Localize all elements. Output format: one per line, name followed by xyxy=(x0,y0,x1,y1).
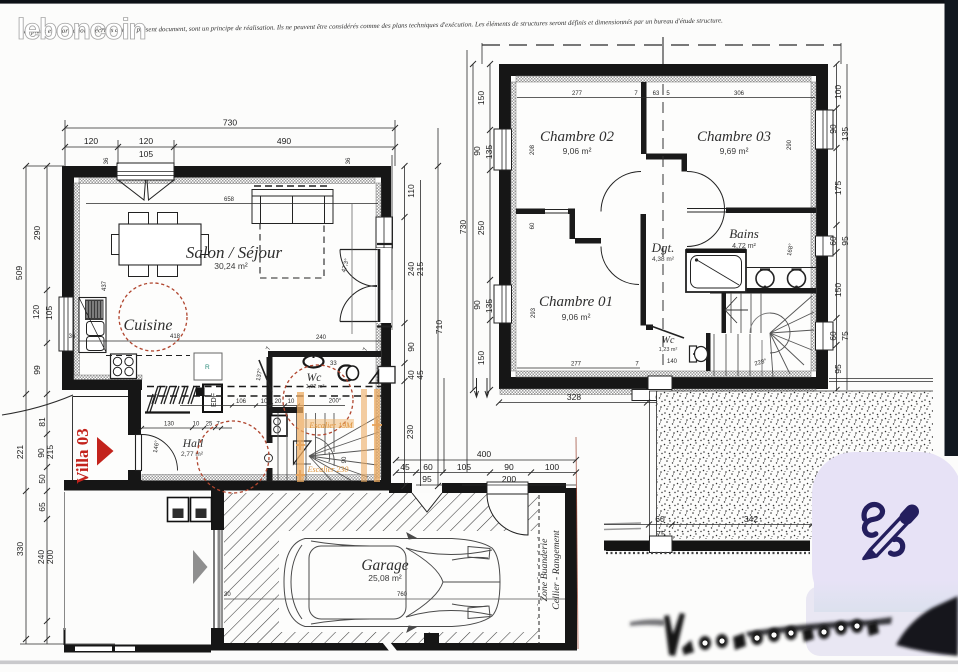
svg-text:1,92 m²: 1,92 m² xyxy=(306,384,325,390)
svg-text:105: 105 xyxy=(457,462,471,472)
svg-text:60: 60 xyxy=(828,236,838,246)
svg-text:2,77 m²: 2,77 m² xyxy=(181,451,204,458)
svg-text:75: 75 xyxy=(840,331,850,341)
svg-text:60: 60 xyxy=(655,514,665,524)
svg-text:99: 99 xyxy=(32,365,42,375)
svg-text:33: 33 xyxy=(330,361,337,367)
svg-text:135: 135 xyxy=(484,145,494,159)
svg-text:277: 277 xyxy=(572,91,583,97)
svg-text:4,38 m²: 4,38 m² xyxy=(652,256,675,263)
svg-text:105: 105 xyxy=(139,149,153,159)
svg-text:Chambre 02: Chambre 02 xyxy=(540,129,615,145)
svg-text:306: 306 xyxy=(734,91,745,97)
svg-text:100: 100 xyxy=(833,85,843,99)
svg-text:120: 120 xyxy=(31,305,41,319)
svg-text:509: 509 xyxy=(14,266,24,280)
svg-text:200: 200 xyxy=(502,474,516,484)
svg-text:10: 10 xyxy=(193,422,200,428)
svg-text:1,23 m²: 1,23 m² xyxy=(659,347,678,353)
svg-text:110: 110 xyxy=(406,184,416,198)
svg-text:150: 150 xyxy=(476,351,486,365)
svg-text:Escalier 19M: Escalier 19M xyxy=(308,421,354,430)
svg-text:25,08 m²: 25,08 m² xyxy=(368,573,402,583)
svg-text:290: 290 xyxy=(32,226,42,240)
svg-text:120: 120 xyxy=(84,136,98,146)
svg-text:90: 90 xyxy=(406,342,416,352)
svg-text:45: 45 xyxy=(400,462,410,472)
svg-text:63: 63 xyxy=(653,91,660,97)
svg-text:90: 90 xyxy=(472,146,482,156)
svg-text:100: 100 xyxy=(545,462,559,472)
svg-text:330: 330 xyxy=(15,542,25,556)
svg-text:36: 36 xyxy=(346,157,352,164)
svg-text:Chambre 01: Chambre 01 xyxy=(539,294,613,310)
svg-text:240: 240 xyxy=(316,335,327,341)
svg-text:277: 277 xyxy=(571,362,582,368)
svg-text:45: 45 xyxy=(415,370,425,380)
svg-text:Villa 03: Villa 03 xyxy=(73,428,92,484)
svg-text:Escalier 230: Escalier 230 xyxy=(307,465,349,474)
svg-text:9,06 m²: 9,06 m² xyxy=(562,312,591,322)
svg-text:EDF: EDF xyxy=(211,393,218,407)
svg-text:Dgt.: Dgt. xyxy=(651,240,675,255)
svg-text:30: 30 xyxy=(224,592,231,598)
svg-text:36: 36 xyxy=(69,334,76,340)
svg-text:730: 730 xyxy=(223,118,237,128)
svg-text:25: 25 xyxy=(206,422,213,428)
svg-text:342: 342 xyxy=(744,514,758,524)
svg-text:208: 208 xyxy=(530,144,536,155)
svg-text:250: 250 xyxy=(476,221,486,235)
svg-text:105: 105 xyxy=(44,306,54,320)
svg-text:328: 328 xyxy=(567,392,581,402)
svg-text:90: 90 xyxy=(504,462,514,472)
svg-text:230: 230 xyxy=(405,425,415,439)
svg-text:730: 730 xyxy=(458,220,468,234)
svg-text:36: 36 xyxy=(104,157,110,164)
svg-text:215: 215 xyxy=(45,445,55,459)
svg-text:710: 710 xyxy=(434,320,444,334)
svg-text:135: 135 xyxy=(840,127,850,141)
svg-text:Hall: Hall xyxy=(182,438,203,450)
svg-text:400: 400 xyxy=(477,449,491,459)
svg-text:60: 60 xyxy=(423,462,433,472)
svg-text:30,24 m²: 30,24 m² xyxy=(214,261,248,271)
svg-text:437: 437 xyxy=(102,280,108,291)
svg-text:290: 290 xyxy=(787,139,793,150)
svg-text:130: 130 xyxy=(164,422,175,428)
svg-text:9,69 m²: 9,69 m² xyxy=(720,146,749,156)
svg-text:90: 90 xyxy=(342,456,348,463)
svg-text:60: 60 xyxy=(828,331,838,341)
svg-text:200°: 200° xyxy=(329,399,342,405)
svg-text:490: 490 xyxy=(277,136,291,146)
svg-text:Cellier - Rangement: Cellier - Rangement xyxy=(551,530,562,610)
svg-text:Wc: Wc xyxy=(662,335,675,346)
svg-text:4,72 m²: 4,72 m² xyxy=(732,243,756,250)
svg-text:Chambre 03: Chambre 03 xyxy=(697,129,771,145)
svg-text:150: 150 xyxy=(833,283,843,297)
svg-text:10: 10 xyxy=(288,399,295,405)
svg-text:140: 140 xyxy=(667,359,678,365)
svg-text:Wc: Wc xyxy=(307,372,322,384)
svg-text:Salon / Séjour: Salon / Séjour xyxy=(186,243,283,262)
svg-text:106: 106 xyxy=(236,399,247,405)
svg-text:215: 215 xyxy=(415,262,425,276)
svg-text:200: 200 xyxy=(45,550,55,564)
svg-text:leboncoin: leboncoin xyxy=(17,13,145,46)
svg-text:Cuisine: Cuisine xyxy=(124,317,173,334)
svg-text:60: 60 xyxy=(530,222,536,229)
svg-text:10: 10 xyxy=(261,399,268,405)
svg-text:R: R xyxy=(205,364,210,371)
svg-text:Garage: Garage xyxy=(361,557,408,574)
svg-text:293: 293 xyxy=(531,307,537,318)
svg-text:95: 95 xyxy=(833,364,843,374)
svg-text:135: 135 xyxy=(484,299,494,313)
svg-text:221: 221 xyxy=(15,445,25,459)
svg-text:81: 81 xyxy=(37,417,47,427)
svg-text:9,06 m²: 9,06 m² xyxy=(563,146,592,156)
svg-text:20: 20 xyxy=(275,399,282,405)
svg-text:90: 90 xyxy=(828,124,838,134)
svg-text:Bains: Bains xyxy=(729,226,759,241)
svg-text:Zone Buanderie: Zone Buanderie xyxy=(539,538,550,602)
svg-text:65: 65 xyxy=(37,502,47,512)
svg-text:95: 95 xyxy=(840,236,850,246)
svg-text:50: 50 xyxy=(37,474,47,484)
svg-text:150: 150 xyxy=(476,91,486,105)
svg-text:175: 175 xyxy=(833,181,843,195)
svg-text:120: 120 xyxy=(139,136,153,146)
svg-text:95: 95 xyxy=(422,474,432,484)
svg-text:90: 90 xyxy=(472,300,482,310)
svg-text:760: 760 xyxy=(397,592,408,598)
svg-text:658: 658 xyxy=(224,197,235,203)
